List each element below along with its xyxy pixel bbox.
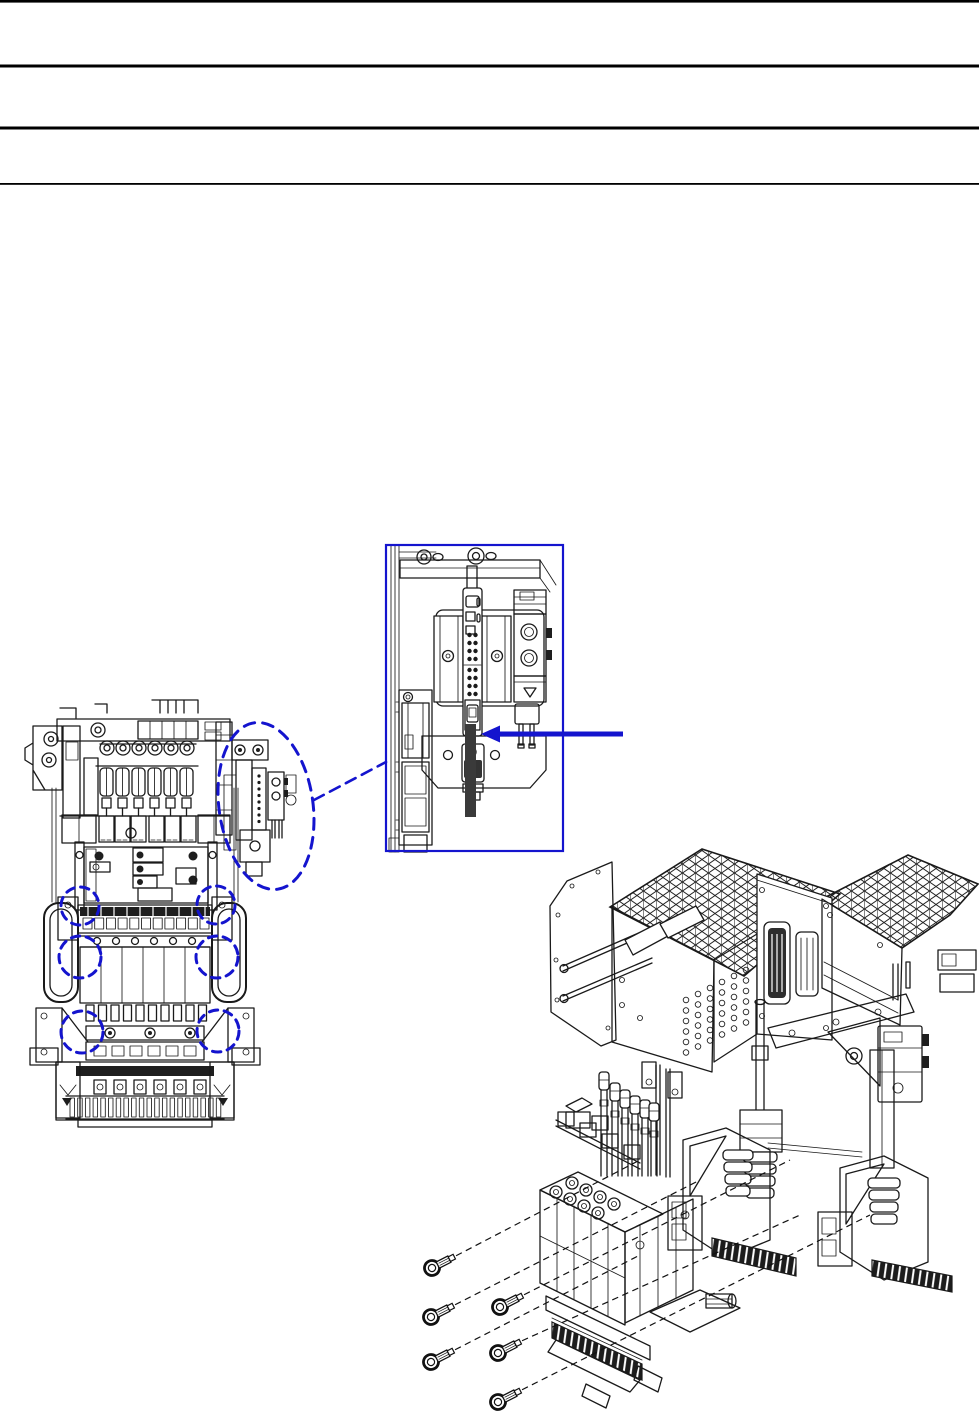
tension-unit-base bbox=[134, 798, 143, 808]
tension-unit-base bbox=[182, 798, 191, 808]
mounting-screw bbox=[421, 1344, 457, 1372]
detail-callout-figure bbox=[389, 545, 556, 852]
highlight-circle bbox=[61, 1011, 103, 1053]
grid-hole bbox=[707, 985, 713, 991]
pin-dot bbox=[467, 649, 471, 653]
slat bbox=[124, 1005, 132, 1021]
washer bbox=[180, 741, 194, 755]
needle-hole bbox=[151, 938, 158, 945]
grid-hole bbox=[731, 984, 737, 990]
connector-dots bbox=[257, 774, 260, 823]
highlight-circle bbox=[197, 1010, 239, 1052]
pointer-arrow-shaft bbox=[500, 732, 623, 737]
grid-hole bbox=[707, 996, 713, 1002]
slat-row bbox=[86, 1005, 207, 1021]
bellows-disc bbox=[870, 1202, 898, 1212]
screws-and-trajectories bbox=[421, 1160, 870, 1411]
mounting-screw bbox=[422, 1250, 458, 1278]
grid-hole bbox=[683, 1018, 689, 1024]
washer bbox=[164, 741, 178, 755]
plunger-cap bbox=[599, 1072, 609, 1090]
manual-page bbox=[0, 0, 979, 1411]
comb-tooth bbox=[93, 1098, 98, 1117]
connector-dot bbox=[257, 820, 260, 823]
screw-trajectory-line bbox=[524, 1160, 790, 1295]
base-square bbox=[154, 1080, 166, 1094]
connector-dot bbox=[257, 787, 260, 790]
square-cell bbox=[118, 918, 127, 929]
slat bbox=[111, 1005, 119, 1021]
needle-hole bbox=[113, 938, 120, 945]
pin-dot bbox=[473, 649, 477, 653]
comb-tooth bbox=[147, 1098, 152, 1117]
washer-row bbox=[100, 741, 194, 755]
bolt-hole-grid bbox=[683, 967, 749, 1055]
pin-dot bbox=[467, 676, 471, 680]
grid-hole bbox=[695, 1002, 701, 1008]
pin-dot bbox=[467, 657, 471, 661]
flat-cable-bar bbox=[465, 724, 476, 817]
base-square-hole bbox=[197, 1084, 203, 1090]
pin-dot bbox=[473, 641, 477, 645]
comb-tooth bbox=[170, 1098, 175, 1117]
base-square bbox=[94, 1080, 106, 1094]
grid-hole bbox=[683, 1039, 689, 1045]
comb-tooth bbox=[201, 1098, 206, 1117]
connector-dot bbox=[257, 794, 260, 797]
bellows-disc bbox=[868, 1178, 900, 1188]
grid-hole bbox=[743, 999, 749, 1005]
screw-trajectory-line bbox=[456, 1160, 640, 1256]
bellows-disc bbox=[725, 1174, 751, 1184]
bellows-disc bbox=[726, 1186, 750, 1196]
washer bbox=[132, 741, 146, 755]
grid-hole bbox=[695, 991, 701, 997]
grid-hole bbox=[743, 978, 749, 984]
bellows-disc bbox=[724, 1162, 752, 1172]
pin-dot bbox=[473, 657, 477, 661]
washer-hole bbox=[184, 745, 190, 751]
grid-hole bbox=[719, 1000, 725, 1006]
washer bbox=[100, 741, 114, 755]
valve-attachment bbox=[224, 740, 296, 876]
screw-trajectory-line bbox=[522, 1215, 800, 1341]
base-square-hole bbox=[137, 1084, 143, 1090]
pin-dot bbox=[473, 633, 477, 637]
flat-cable bbox=[465, 724, 476, 817]
slat bbox=[174, 1005, 182, 1021]
needle-plate-holes bbox=[94, 938, 196, 945]
base-square-hole bbox=[97, 1084, 103, 1090]
base-square-hole bbox=[157, 1084, 163, 1090]
header-rule bbox=[0, 0, 979, 3]
grid-hole bbox=[695, 1033, 701, 1039]
grid-hole bbox=[731, 1005, 737, 1011]
square-cell bbox=[106, 918, 115, 929]
comb-tooth bbox=[209, 1098, 214, 1117]
comb-tooth bbox=[193, 1098, 198, 1117]
grid-hole bbox=[707, 1017, 713, 1023]
comb-tooth bbox=[139, 1098, 144, 1117]
grid-hole bbox=[719, 1021, 725, 1027]
highlight-circle bbox=[61, 887, 99, 925]
header-rule bbox=[0, 127, 979, 130]
square-cell bbox=[188, 918, 197, 929]
grid-hole bbox=[695, 1044, 701, 1050]
panel-columns bbox=[101, 947, 185, 1003]
grid-hole bbox=[731, 1026, 737, 1032]
base-square-hole bbox=[117, 1084, 123, 1090]
comb-tooth bbox=[124, 1098, 128, 1117]
grid-hole bbox=[731, 994, 737, 1000]
grid-hole bbox=[719, 979, 725, 985]
needle-hole bbox=[132, 938, 139, 945]
grid-hole bbox=[743, 1009, 749, 1015]
highlight-circle bbox=[196, 936, 238, 978]
tension-unit-row bbox=[100, 768, 193, 816]
header-rule bbox=[0, 65, 979, 68]
grid-hole bbox=[731, 1015, 737, 1021]
bellows-disc bbox=[871, 1214, 897, 1224]
comb-tooth bbox=[116, 1098, 121, 1117]
grid-hole bbox=[707, 1006, 713, 1012]
grid-hole bbox=[719, 1011, 725, 1017]
washer-hole bbox=[168, 745, 174, 751]
plunger-cap bbox=[620, 1090, 630, 1108]
screw-trajectory-line bbox=[455, 1180, 700, 1305]
plunger-cap bbox=[630, 1096, 640, 1114]
machine-front-view-figure bbox=[25, 700, 296, 1127]
comb-tooth bbox=[101, 1098, 106, 1117]
tension-unit-base bbox=[150, 798, 159, 808]
comb-tooth bbox=[178, 1098, 183, 1117]
pin-dot bbox=[467, 641, 471, 645]
comb-tooth bbox=[155, 1098, 160, 1117]
mounting-screw bbox=[421, 1299, 457, 1327]
pointer-arrow-head bbox=[481, 726, 500, 743]
comb-tooth bbox=[132, 1098, 137, 1117]
washer-hole bbox=[136, 745, 142, 751]
slat bbox=[186, 1005, 194, 1021]
mounting-screw bbox=[488, 1384, 524, 1411]
connector-dot bbox=[257, 781, 260, 784]
callout-leader-line bbox=[314, 762, 386, 800]
connector-dot bbox=[257, 800, 260, 803]
slat bbox=[161, 1005, 169, 1021]
plunger-cap bbox=[610, 1083, 620, 1101]
comb-tooth bbox=[109, 1098, 114, 1117]
pin-dot bbox=[473, 676, 477, 680]
grid-hole bbox=[731, 973, 737, 979]
base-square bbox=[174, 1080, 186, 1094]
pin-dot bbox=[473, 692, 477, 696]
tension-unit-base bbox=[118, 798, 127, 808]
washer bbox=[148, 741, 162, 755]
base-square bbox=[134, 1080, 146, 1094]
pin-dot bbox=[473, 668, 477, 672]
tension-unit-base bbox=[102, 798, 111, 808]
slat bbox=[99, 1005, 107, 1021]
base-comb bbox=[70, 1098, 221, 1117]
pin-dot bbox=[473, 684, 477, 688]
comb-tooth bbox=[70, 1098, 75, 1117]
pin-dot bbox=[467, 692, 471, 696]
grid-hole bbox=[719, 1032, 725, 1038]
bellows-disc bbox=[869, 1190, 899, 1200]
square-cell bbox=[142, 918, 151, 929]
exploded-isometric-figure bbox=[540, 849, 978, 1408]
grid-hole bbox=[707, 1027, 713, 1033]
square-cell bbox=[95, 918, 104, 929]
grid-hole bbox=[695, 1023, 701, 1029]
needle-hole bbox=[170, 938, 177, 945]
connector-dot bbox=[257, 774, 260, 777]
slat bbox=[136, 1005, 144, 1021]
base-square-row bbox=[94, 1080, 206, 1094]
bellows-right bbox=[868, 1178, 900, 1224]
grid-hole bbox=[683, 997, 689, 1003]
header-rules bbox=[0, 0, 979, 185]
tension-unit-base bbox=[166, 798, 175, 808]
washer-hole bbox=[120, 745, 126, 751]
connector-dot bbox=[257, 807, 260, 810]
grid-hole bbox=[743, 1020, 749, 1026]
pin-dot bbox=[467, 668, 471, 672]
grid-hole bbox=[695, 1012, 701, 1018]
washer-hole bbox=[104, 745, 110, 751]
pin-dot bbox=[467, 684, 471, 688]
page-figure-canvas bbox=[0, 0, 979, 1411]
needle-hole bbox=[189, 938, 196, 945]
grid-hole bbox=[683, 1008, 689, 1014]
comb-tooth bbox=[186, 1098, 191, 1117]
comb-tooth bbox=[162, 1098, 167, 1117]
comb-tooth bbox=[85, 1098, 90, 1117]
slat bbox=[149, 1005, 157, 1021]
mounting-screw bbox=[490, 1289, 526, 1317]
bellows-left bbox=[723, 1150, 777, 1198]
square-cell bbox=[153, 918, 162, 929]
grid-hole bbox=[719, 990, 725, 996]
square-row bbox=[83, 918, 209, 929]
base-square bbox=[114, 1080, 126, 1094]
mounting-screw bbox=[488, 1335, 524, 1363]
square-cell bbox=[130, 918, 139, 929]
washer-hole bbox=[152, 745, 158, 751]
washer bbox=[116, 741, 130, 755]
header-rule bbox=[0, 183, 979, 185]
bellows-disc bbox=[723, 1150, 753, 1160]
pin-dot bbox=[467, 633, 471, 637]
square-cell bbox=[165, 918, 174, 929]
solenoid-valve bbox=[514, 590, 552, 748]
grid-hole bbox=[683, 1029, 689, 1035]
base-square-hole bbox=[177, 1084, 183, 1090]
connector-dot bbox=[257, 813, 260, 816]
screw-trajectory-line bbox=[455, 1255, 640, 1350]
grid-hole bbox=[743, 988, 749, 994]
square-cell bbox=[177, 918, 186, 929]
base-square bbox=[194, 1080, 206, 1094]
grid-hole bbox=[683, 1050, 689, 1056]
plunger-cap bbox=[649, 1103, 659, 1121]
